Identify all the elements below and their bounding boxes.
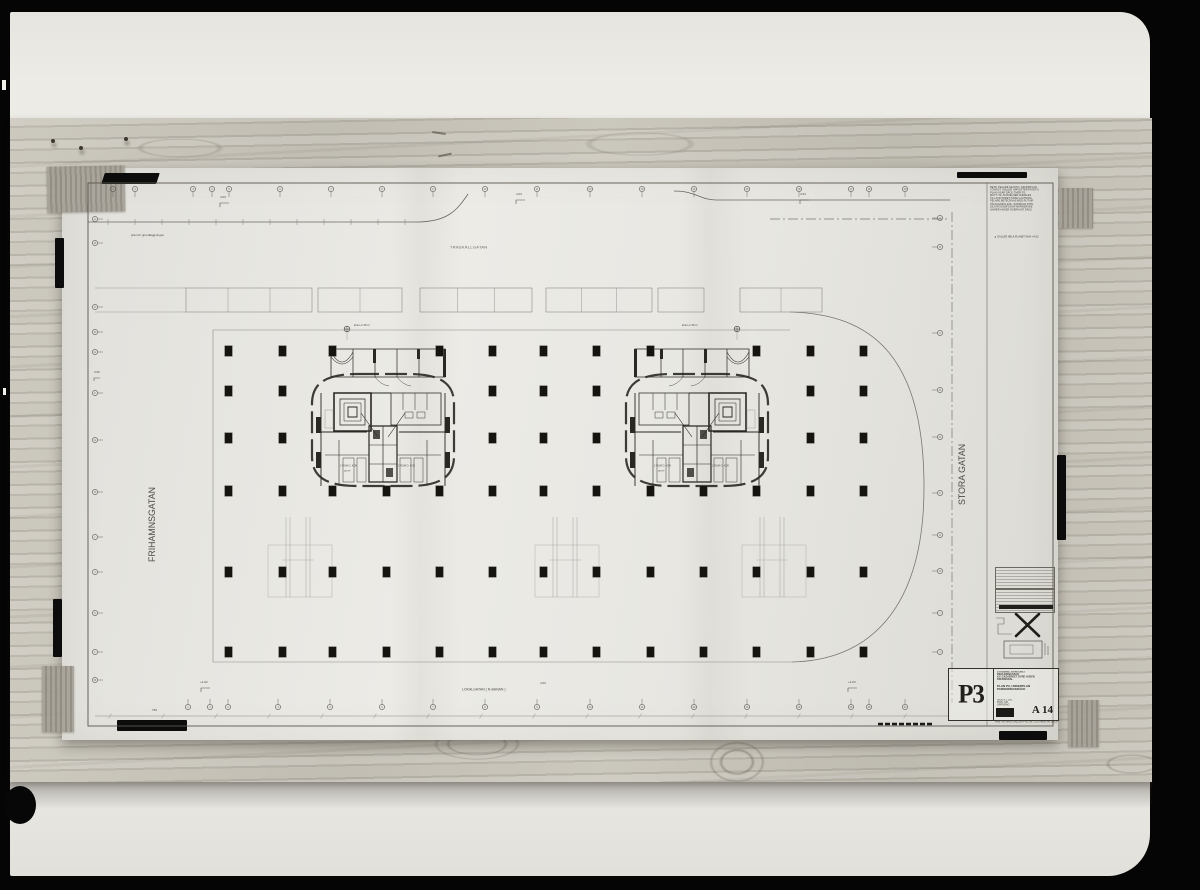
office-lines: STADSING. KONTORET REGLERINGSAVD.KV. GAS… <box>997 671 1047 681</box>
column <box>279 486 286 496</box>
column <box>436 486 443 496</box>
column <box>225 567 232 577</box>
drawing-sheet <box>62 168 1058 740</box>
column <box>329 647 336 657</box>
column <box>860 647 867 657</box>
photo-of-architectural-drawing: 1234567891011121314151617181912345678910… <box>0 0 1200 890</box>
column <box>807 567 814 577</box>
column <box>860 386 867 396</box>
column <box>279 386 286 396</box>
column <box>700 647 707 657</box>
column <box>489 647 496 657</box>
column <box>753 346 760 356</box>
text-line: PARKERINGSDÄCK <box>997 688 1057 691</box>
title-block: P3 STADSING. KONTORET REGLERINGSAVD.KV. … <box>948 668 1059 721</box>
schedule-table-1 <box>995 567 1055 589</box>
gray-tape-bottom-left <box>42 666 74 732</box>
column <box>489 433 496 443</box>
black-tape-right <box>1057 455 1066 540</box>
spot-elevation: 4.05 <box>94 371 100 374</box>
column <box>225 647 232 657</box>
gray-tape-bottom-right <box>1068 700 1099 747</box>
street-label-bottom: LOKALGATAN ( N-BANAN ) <box>462 688 506 692</box>
subject-lines: PLAN P3, UNDERPLANPARKERINGSDÄCK <box>997 685 1057 691</box>
nail <box>79 146 83 150</box>
column <box>860 433 867 443</box>
spot-elevation: +4.03 <box>848 681 856 684</box>
notes-lines: BETR. PELARE SE RITN. GRUNDPLANI ÖVRIGT … <box>990 186 1050 211</box>
column <box>593 433 600 443</box>
notes-footer: ▲ GÄLLER HELA PLANET NIVÅ +4.03 <box>994 236 1038 239</box>
room-label: 2 RUM O. KÖK <box>398 465 415 468</box>
column <box>383 647 390 657</box>
sheet-number-cell: P3 <box>949 669 994 720</box>
column <box>807 386 814 396</box>
column <box>225 346 232 356</box>
spot-elevation: 4.03 <box>516 193 522 196</box>
black-tape-bottom-left <box>117 720 187 731</box>
column <box>807 346 814 356</box>
column <box>700 486 707 496</box>
column <box>279 647 286 657</box>
column <box>279 346 286 356</box>
column <box>383 486 390 496</box>
column <box>593 567 600 577</box>
title-block-right: STADSING. KONTORET REGLERINGSAVD.KV. GAS… <box>994 669 1058 720</box>
column <box>860 567 867 577</box>
column <box>383 567 390 577</box>
column <box>807 486 814 496</box>
photo-blemish <box>4 786 36 824</box>
title-block-footer: ARB. RITNING GÄLLER FR.O.M. GJUTNING AV … <box>995 721 1058 724</box>
column <box>593 346 600 356</box>
column <box>593 486 600 496</box>
column <box>647 567 654 577</box>
column <box>753 567 760 577</box>
room-label: 2 RUM O. KÖK <box>340 465 357 468</box>
sheet-number: P3 <box>958 680 984 709</box>
column <box>647 647 654 657</box>
dimension-text: 750 <box>152 709 157 712</box>
column <box>540 346 547 356</box>
street-label-left: FRIHAMNSGATAN <box>148 487 158 562</box>
schedule-highlight-row <box>999 605 1053 609</box>
black-tape-left-lower <box>53 599 62 657</box>
column <box>807 433 814 443</box>
column <box>540 567 547 577</box>
spot-elevation: 4.03 <box>800 193 806 196</box>
spot-elevation: +4.03 <box>200 681 208 684</box>
room-sublabel: 58 M² <box>658 470 664 473</box>
black-tape-top-right <box>957 172 1027 178</box>
column <box>540 486 547 496</box>
column <box>860 346 867 356</box>
column <box>593 386 600 396</box>
street-label-top: TRÄSKÄLLGATAN <box>450 246 488 251</box>
black-tape-left-upper <box>55 238 64 288</box>
column <box>225 386 232 396</box>
column <box>329 486 336 496</box>
column <box>647 486 654 496</box>
black-tape-top-left <box>101 173 160 184</box>
foundation-note: plan för grundläggningen <box>131 234 164 237</box>
column <box>647 346 654 356</box>
column <box>279 567 286 577</box>
text-line: NIVÅER ANGER ÖVERKANT DÄCK <box>990 208 1050 211</box>
column <box>489 386 496 396</box>
column <box>860 486 867 496</box>
spot-elevation: 4.03 <box>540 682 546 685</box>
black-tape-bottom-right <box>999 731 1047 740</box>
gray-tape-top-right <box>1059 188 1093 228</box>
column <box>225 486 232 496</box>
text-line: BRUNNSDAL <box>997 679 1047 682</box>
nail <box>124 137 128 141</box>
column <box>700 567 707 577</box>
column <box>436 647 443 657</box>
column <box>329 567 336 577</box>
column <box>540 386 547 396</box>
column <box>329 346 336 356</box>
column <box>489 567 496 577</box>
column <box>436 346 443 356</box>
nail <box>51 139 55 143</box>
schedule-table-2 <box>995 589 1055 613</box>
column <box>540 647 547 657</box>
column <box>225 433 232 443</box>
crane-note: kran ⌀ 35 m <box>682 324 698 327</box>
drawing-number: A 14 <box>1032 704 1053 716</box>
room-label: 2 RUM O. KÖK <box>712 465 729 468</box>
room-label: 2 RUM O. KÖK <box>654 465 671 468</box>
stamp-box <box>996 708 1014 717</box>
column <box>489 346 496 356</box>
column <box>807 647 814 657</box>
column <box>436 567 443 577</box>
column <box>753 647 760 657</box>
street-label-right: STORA GATAN <box>958 444 968 505</box>
spot-elevation: 4.03 <box>220 196 226 199</box>
film-speck <box>3 388 6 395</box>
board-drop-shadow <box>10 781 1152 809</box>
column <box>540 433 547 443</box>
column <box>279 433 286 443</box>
column <box>753 486 760 496</box>
room-sublabel: 58 M² <box>344 470 350 473</box>
column <box>593 647 600 657</box>
column <box>489 486 496 496</box>
crane-note: kran ⌀ 35 m <box>354 324 370 327</box>
film-speck <box>2 80 6 90</box>
